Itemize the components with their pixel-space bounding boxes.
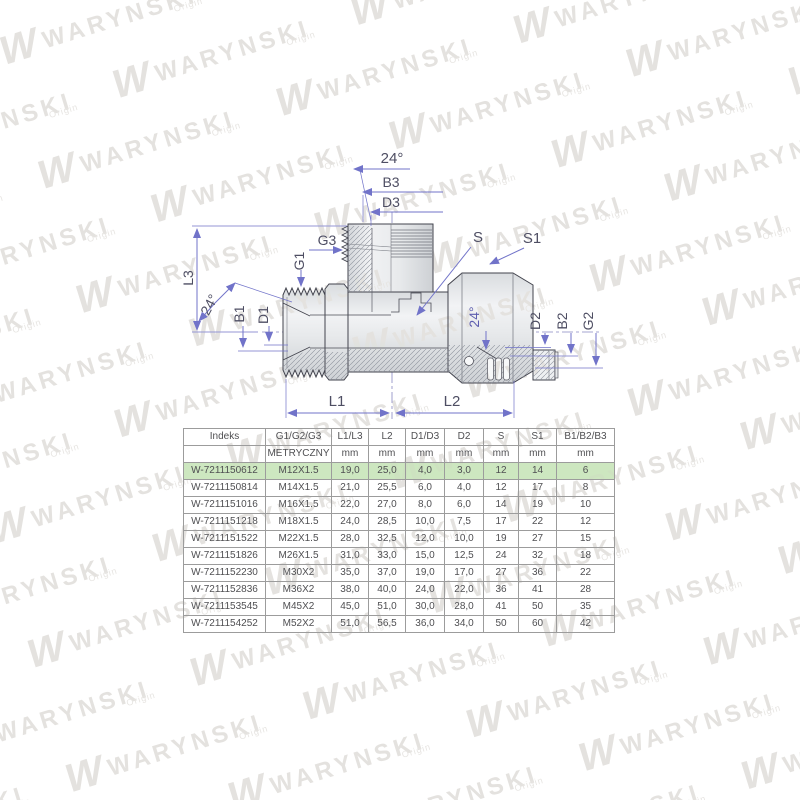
watermark-brand-mark: WWARYNSKIOrigin bbox=[0, 408, 83, 531]
table-cell: 51,0 bbox=[332, 616, 369, 633]
column-header: D2 bbox=[445, 429, 484, 446]
dim-label-b2: B2 bbox=[554, 312, 570, 329]
table-cell: 8,0 bbox=[406, 497, 445, 514]
brand-w-logo-icon: W bbox=[777, 519, 800, 596]
column-header: S1 bbox=[519, 429, 557, 446]
table-cell: 24 bbox=[484, 548, 519, 565]
table-cell: 4,0 bbox=[406, 463, 445, 480]
dim-label-d1: D1 bbox=[255, 306, 271, 324]
table-cell: 3,0 bbox=[445, 463, 484, 480]
index-cell: W-7211152230 bbox=[184, 565, 266, 582]
watermark-sub-text: Origin bbox=[715, 73, 763, 144]
table-cell: 36,0 bbox=[406, 616, 445, 633]
watermark-brand-mark: WWARYNSKIOrigin bbox=[693, 224, 800, 347]
table-cell: 37,0 bbox=[369, 565, 406, 582]
dim-label-d3: D3 bbox=[382, 194, 400, 210]
column-header: L2 bbox=[369, 429, 406, 446]
table-cell: 24,0 bbox=[332, 514, 369, 531]
watermark-sub-text: Origin bbox=[440, 22, 488, 93]
units-cell bbox=[184, 446, 266, 463]
watermark-sub-text: Origin bbox=[78, 200, 126, 271]
dim-label-b1: B1 bbox=[231, 305, 247, 322]
units-cell: mm bbox=[406, 446, 445, 463]
watermark-brand-mark: WWARYNSKIOrigin bbox=[0, 317, 157, 440]
watermark-sub-text: Origin bbox=[667, 428, 715, 499]
watermark-sub-text: Origin bbox=[2, 0, 50, 22]
brand-w-logo-icon: W bbox=[189, 631, 226, 708]
watermark-row: WWARYNSKIOriginWWARYNSKIOriginWWARYNSKIO… bbox=[0, 0, 800, 139]
watermark-sub-text: Origin bbox=[0, 646, 2, 717]
brand-w-logo-icon: W bbox=[664, 486, 701, 563]
table-cell: 28,5 bbox=[369, 514, 406, 531]
table-cell: 14 bbox=[484, 497, 519, 514]
index-cell: W-7211154252 bbox=[184, 616, 266, 633]
table-cell: 45,0 bbox=[332, 599, 369, 616]
watermark-brand-mark: WWARYNSKIOrigin bbox=[457, 636, 672, 759]
table-cell: 27 bbox=[484, 565, 519, 582]
column-header: G1/G2/G3 bbox=[266, 429, 332, 446]
table-cell: M22X1.5 bbox=[266, 531, 332, 548]
brand-w-logo-icon: W bbox=[739, 395, 776, 472]
watermark-sub-text: Origin bbox=[0, 770, 40, 800]
table-cell: 10 bbox=[557, 497, 615, 514]
table-row: W-7211151218M18X1.524,028,510,07,5172212 bbox=[184, 514, 615, 531]
column-header: Indeks bbox=[184, 429, 266, 446]
brand-w-logo-icon: W bbox=[340, 789, 377, 800]
table-cell: 41 bbox=[519, 582, 557, 599]
index-cell: W-7211151826 bbox=[184, 548, 266, 565]
watermark-brand-mark: WWARYNSKIOrigin bbox=[0, 781, 197, 800]
brand-w-logo-icon: W bbox=[740, 735, 777, 800]
watermark-brand-mark: WWARYNSKIOrigin bbox=[342, 0, 557, 46]
watermark-row: WWARYNSKIOriginWWARYNSKIOriginWWARYNSKIO… bbox=[0, 0, 800, 14]
watermark-sub-text: Origin bbox=[629, 304, 677, 375]
watermark-brand-mark: WWARYNSKIOrigin bbox=[495, 760, 710, 800]
table-cell: 10,0 bbox=[445, 531, 484, 548]
column-header: L1/L3 bbox=[332, 429, 369, 446]
spec-table-container: IndeksG1/G2/G3L1/L3L2D1/D3D2SS1B1/B2/B3 … bbox=[183, 428, 615, 633]
table-cell: 51,0 bbox=[369, 599, 406, 616]
watermark-brand-mark: WWARYNSKIOrigin bbox=[0, 193, 119, 316]
brand-w-logo-icon: W bbox=[227, 755, 264, 800]
table-row: W-7211150814M14X1.521,025,56,04,012178 bbox=[184, 480, 615, 497]
table-cell: 6,0 bbox=[445, 497, 484, 514]
cutting-ring-ball bbox=[465, 357, 474, 366]
watermark-brand-mark: WWARYNSKIOrigin bbox=[504, 0, 719, 64]
table-cell: M45X2 bbox=[266, 599, 332, 616]
table-cell: M16X1.5 bbox=[266, 497, 332, 514]
table-cell: 27 bbox=[519, 531, 557, 548]
table-cell: M12X1.5 bbox=[266, 463, 332, 480]
watermark-brand-mark: WWARYNSKIOrigin bbox=[618, 314, 800, 437]
index-cell: W-7211151016 bbox=[184, 497, 266, 514]
table-cell: 15 bbox=[557, 531, 615, 548]
watermark-sub-text: Origin bbox=[230, 697, 278, 768]
brand-w-logo-icon: W bbox=[701, 271, 738, 348]
watermark-brand-mark: WWARYNSKIOrigin bbox=[608, 794, 800, 800]
watermark-brand-mark: WWARYNSKIOrigin bbox=[0, 441, 195, 564]
watermark-sub-text: Origin bbox=[165, 0, 213, 41]
units-cell: mm bbox=[484, 446, 519, 463]
table-cell: 12 bbox=[484, 463, 519, 480]
table-cell: 10,0 bbox=[406, 514, 445, 531]
column-header: D1/D3 bbox=[406, 429, 445, 446]
watermark-row: WWARYNSKIOriginWWARYNSKIOriginWWARYNSKIO… bbox=[0, 757, 800, 800]
watermark-brand-mark: WWARYNSKIOrigin bbox=[656, 439, 800, 562]
watermark-sub-text: Origin bbox=[743, 677, 791, 748]
watermark-sub-text: Origin bbox=[155, 788, 203, 800]
dim-label-l3: L3 bbox=[180, 270, 196, 286]
watermark-sub-text: Origin bbox=[0, 167, 13, 238]
table-row: W-7211151016M16X1.522,027,08,06,0141910 bbox=[184, 497, 615, 514]
table-cell: 35 bbox=[557, 599, 615, 616]
table-cell: M18X1.5 bbox=[266, 514, 332, 531]
watermark-row: WWARYNSKIOriginWWARYNSKIOriginWWARYNSKIO… bbox=[0, 695, 800, 800]
watermark-sub-text: Origin bbox=[3, 291, 51, 362]
watermark-sub-text: Origin bbox=[790, 0, 800, 53]
watermark-sub-text: Origin bbox=[505, 749, 553, 800]
watermark-brand-mark: WWARYNSKIOrigin bbox=[220, 708, 435, 800]
column-header: B1/B2/B3 bbox=[557, 429, 615, 446]
watermark-brand-mark: WWARYNSKIOrigin bbox=[617, 0, 800, 98]
dim-label-g1: G1 bbox=[291, 251, 307, 270]
column-header: S bbox=[484, 429, 519, 446]
spec-table: IndeksG1/G2/G3L1/L3L2D1/D3D2SS1B1/B2/B3 … bbox=[183, 428, 615, 633]
table-cell: 22,0 bbox=[332, 497, 369, 514]
table-cell: 27,0 bbox=[369, 497, 406, 514]
table-cell: M14X1.5 bbox=[266, 480, 332, 497]
units-cell: mm bbox=[519, 446, 557, 463]
table-cell: 41 bbox=[484, 599, 519, 616]
table-cell: 19,0 bbox=[332, 463, 369, 480]
dim-label-s: S bbox=[473, 229, 483, 246]
index-cell: W-7211152836 bbox=[184, 582, 266, 599]
table-cell: 4,0 bbox=[445, 480, 484, 497]
watermark-sub-text: Origin bbox=[553, 55, 601, 126]
watermark-brand-mark: WWARYNSKIOrigin bbox=[570, 669, 785, 792]
watermark-brand-mark: WWARYNSKIOrigin bbox=[229, 0, 444, 13]
brand-w-logo-icon: W bbox=[663, 147, 700, 224]
watermark-sub-text: Origin bbox=[41, 415, 89, 486]
dim-label-d2: D2 bbox=[527, 312, 543, 330]
table-row: W-7211151522M22X1.528,032,512,010,019271… bbox=[184, 531, 615, 548]
table-cell: 14 bbox=[519, 463, 557, 480]
index-cell: W-7211153545 bbox=[184, 599, 266, 616]
table-cell: 24,0 bbox=[406, 582, 445, 599]
watermark-sub-text: Origin bbox=[79, 540, 127, 611]
watermark-sub-text: Origin bbox=[277, 3, 325, 74]
watermark-brand-mark: WWARYNSKIOrigin bbox=[57, 690, 272, 800]
table-cell: 28,0 bbox=[445, 599, 484, 616]
watermark-brand-mark: WWARYNSKIOrigin bbox=[0, 284, 45, 407]
table-cell: 21,0 bbox=[332, 480, 369, 497]
technical-drawing: 24° B3 D3 G3 G1 S S1 L3 24° B1 D1 24° D2… bbox=[180, 128, 632, 436]
table-cell: 19,0 bbox=[406, 565, 445, 582]
brand-w-logo-icon: W bbox=[702, 610, 739, 687]
table-cell: 36 bbox=[484, 582, 519, 599]
table-cell: M52X2 bbox=[266, 616, 332, 633]
table-cell: 31,0 bbox=[332, 548, 369, 565]
dim-label-b3: B3 bbox=[382, 174, 399, 190]
dim-label-s1: S1 bbox=[523, 230, 541, 247]
watermark-brand-mark: WWARYNSKIOrigin bbox=[731, 348, 800, 471]
table-row: W-7211154252M52X251,056,536,034,0506042 bbox=[184, 616, 615, 633]
watermark-sub-text: Origin bbox=[467, 625, 515, 696]
brand-w-logo-icon: W bbox=[577, 716, 614, 793]
table-cell: 7,5 bbox=[445, 514, 484, 531]
brand-w-logo-icon: W bbox=[512, 0, 549, 66]
table-cell: 32,5 bbox=[369, 531, 406, 548]
dim-label-g2: G2 bbox=[580, 311, 596, 330]
watermark-row: WWARYNSKIOriginWWARYNSKIOriginWWARYNSKIO… bbox=[0, 632, 800, 800]
table-cell: 38,0 bbox=[332, 582, 369, 599]
index-cell: W-7211151522 bbox=[184, 531, 266, 548]
table-cell: 40,0 bbox=[369, 582, 406, 599]
table-cell: 35,0 bbox=[332, 565, 369, 582]
brand-w-logo-icon: W bbox=[113, 382, 150, 459]
watermark-brand-mark: WWARYNSKIOrigin bbox=[0, 68, 81, 191]
table-cell: 8 bbox=[557, 480, 615, 497]
spec-table-body: METRYCZNYmmmmmmmmmmmmmmW-7211150612M12X1… bbox=[184, 446, 615, 633]
brand-w-logo-icon: W bbox=[112, 43, 149, 120]
table-cell: 6 bbox=[557, 463, 615, 480]
table-cell: 60 bbox=[519, 616, 557, 633]
watermark-brand-mark: WWARYNSKIOrigin bbox=[732, 687, 800, 800]
brand-w-logo-icon: W bbox=[75, 258, 112, 335]
index-cell: W-7211150612 bbox=[184, 463, 266, 480]
watermark-brand-mark: WWARYNSKIOrigin bbox=[780, 0, 800, 116]
watermark-sub-text: Origin bbox=[515, 0, 563, 2]
table-cell: 19 bbox=[484, 531, 519, 548]
watermark-sub-text: Origin bbox=[630, 643, 678, 714]
brand-w-logo-icon: W bbox=[65, 737, 102, 800]
table-cell: 17 bbox=[519, 480, 557, 497]
watermark-brand-mark: WWARYNSKIOrigin bbox=[0, 159, 7, 282]
table-cell: 17,0 bbox=[445, 565, 484, 582]
units-cell: mm bbox=[332, 446, 369, 463]
index-cell: W-7211151218 bbox=[184, 514, 266, 531]
table-cell: 12 bbox=[557, 514, 615, 531]
watermark-brand-mark: WWARYNSKIOrigin bbox=[0, 763, 34, 800]
table-cell: 12 bbox=[484, 480, 519, 497]
table-cell: 25,0 bbox=[369, 463, 406, 480]
table-cell: M30X2 bbox=[266, 565, 332, 582]
watermark-brand-mark: WWARYNSKIOrigin bbox=[655, 99, 800, 222]
table-cell: 15,0 bbox=[406, 548, 445, 565]
table-cell: 32 bbox=[519, 548, 557, 565]
table-cell: 56,5 bbox=[369, 616, 406, 633]
dim-label-angle-right: 24° bbox=[466, 306, 482, 327]
watermark-brand-mark: WWARYNSKIOrigin bbox=[294, 617, 509, 740]
table-cell: 18 bbox=[557, 548, 615, 565]
table-cell: 28 bbox=[557, 582, 615, 599]
spec-table-head: IndeksG1/G2/G3L1/L3L2D1/D3D2SS1B1/B2/B3 bbox=[184, 429, 615, 446]
dim-label-angle-top: 24° bbox=[381, 150, 404, 167]
table-cell: 25,5 bbox=[369, 480, 406, 497]
table-row: W-7211152836M36X238,040,024,022,0364128 bbox=[184, 582, 615, 599]
watermark-sub-text: Origin bbox=[668, 767, 716, 800]
watermark-sub-text: Origin bbox=[393, 716, 441, 787]
watermark-row: WWARYNSKIOriginWWARYNSKIOriginWWARYNSKIO… bbox=[0, 0, 800, 105]
table-cell: 50 bbox=[519, 599, 557, 616]
brand-w-logo-icon: W bbox=[625, 22, 662, 99]
watermark-brand-mark: WWARYNSKIOrigin bbox=[0, 0, 206, 85]
table-cell: 50 bbox=[484, 616, 519, 633]
units-cell: mm bbox=[557, 446, 615, 463]
watermark-sub-text: Origin bbox=[116, 324, 164, 395]
watermark-brand-mark: WWARYNSKIOrigin bbox=[332, 742, 547, 800]
dim-label-g3: G3 bbox=[318, 232, 337, 248]
brand-w-logo-icon: W bbox=[787, 40, 800, 117]
watermark-sub-text: Origin bbox=[753, 198, 800, 269]
brand-w-logo-icon: W bbox=[0, 489, 25, 566]
table-cell: 30,0 bbox=[406, 599, 445, 616]
watermark-brand-mark: WWARYNSKIOrigin bbox=[267, 14, 482, 137]
brand-w-logo-icon: W bbox=[275, 61, 312, 138]
table-cell: 33,0 bbox=[369, 548, 406, 565]
table-row: W-7211153545M45X245,051,030,028,0415035 bbox=[184, 599, 615, 616]
brand-w-logo-icon: W bbox=[237, 0, 274, 14]
watermark-brand-mark: WWARYNSKIOrigin bbox=[694, 563, 800, 686]
table-cell: 34,0 bbox=[445, 616, 484, 633]
watermark-brand-mark: WWARYNSKIOrigin bbox=[0, 532, 121, 655]
table-row: W-7211151826M26X1.531,033,015,012,524321… bbox=[184, 548, 615, 565]
units-cell: mm bbox=[445, 446, 484, 463]
table-cell: 22 bbox=[557, 565, 615, 582]
watermark-brand-mark: WWARYNSKIOrigin bbox=[0, 0, 43, 67]
brand-w-logo-icon: W bbox=[302, 665, 339, 742]
watermark-brand-mark: WWARYNSKIOrigin bbox=[104, 0, 319, 119]
brand-w-logo-icon: W bbox=[27, 613, 64, 690]
brand-w-logo-icon: W bbox=[0, 10, 36, 87]
index-cell: W-7211150814 bbox=[184, 480, 266, 497]
watermark-sub-text: Origin bbox=[705, 552, 753, 623]
dim-label-l2: L2 bbox=[444, 393, 461, 410]
table-cell: 22,0 bbox=[445, 582, 484, 599]
units-cell: mm bbox=[369, 446, 406, 463]
watermark-brand-mark: WWARYNSKIOrigin bbox=[0, 657, 159, 780]
units-cell: METRYCZNY bbox=[266, 446, 332, 463]
table-cell: 12,0 bbox=[406, 531, 445, 548]
dim-label-l1: L1 bbox=[329, 393, 346, 410]
watermark-sub-text: Origin bbox=[40, 76, 88, 147]
watermark-brand-mark: WWARYNSKIOrigin bbox=[769, 472, 800, 595]
watermark-sub-text: Origin bbox=[117, 664, 165, 735]
top-port-serration bbox=[342, 226, 348, 262]
watermark-sub-text: Origin bbox=[677, 0, 725, 20]
table-cell: M36X2 bbox=[266, 582, 332, 599]
table-cell: 28,0 bbox=[332, 531, 369, 548]
table-cell: 6,0 bbox=[406, 480, 445, 497]
brand-w-logo-icon: W bbox=[349, 0, 386, 48]
table-cell: 36 bbox=[519, 565, 557, 582]
brand-w-logo-icon: W bbox=[465, 683, 502, 760]
table-cell: 12,5 bbox=[445, 548, 484, 565]
table-row: W-7211150612M12X1.519,025,04,03,012146 bbox=[184, 463, 615, 480]
table-cell: 17 bbox=[484, 514, 519, 531]
dim-label-angle-left: 24° bbox=[197, 291, 221, 317]
watermark-sub-text: Origin bbox=[791, 322, 800, 393]
table-row: W-7211152230M30X235,037,019,017,0273622 bbox=[184, 565, 615, 582]
table-cell: 22 bbox=[519, 514, 557, 531]
brand-w-logo-icon: W bbox=[37, 134, 74, 211]
table-cell: 42 bbox=[557, 616, 615, 633]
table-cell: M26X1.5 bbox=[266, 548, 332, 565]
table-cell: 19 bbox=[519, 497, 557, 514]
